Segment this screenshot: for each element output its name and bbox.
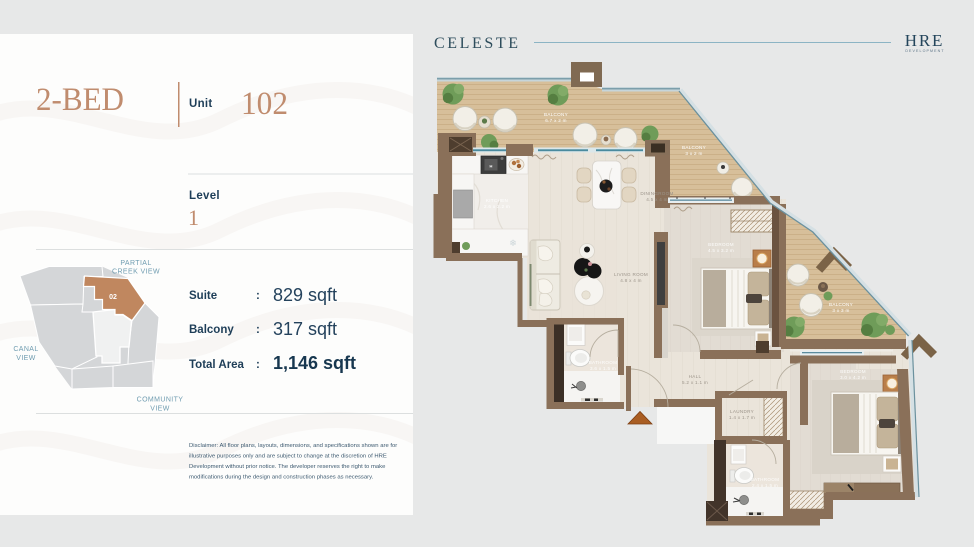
svg-text:PARTIAL: PARTIAL: [120, 260, 151, 267]
svg-text:VIEW: VIEW: [150, 406, 170, 413]
svg-text:3.0 x 4.2 m: 3.0 x 4.2 m: [840, 375, 866, 380]
svg-text:3 x 2 m: 3 x 2 m: [685, 151, 702, 156]
svg-text:1,146 sqft: 1,146 sqft: [273, 353, 356, 373]
svg-text::: :: [256, 324, 260, 336]
svg-text:BALCONY: BALCONY: [682, 145, 706, 150]
svg-text:2.6 x 2.2 m: 2.6 x 2.2 m: [484, 204, 510, 209]
svg-text:2.4 x 1.5 m: 2.4 x 1.5 m: [752, 483, 778, 488]
svg-text:CANAL: CANAL: [13, 346, 38, 353]
svg-text:BEDROOM: BEDROOM: [708, 242, 734, 247]
svg-text:5.2 x 1.1 m: 5.2 x 1.1 m: [682, 380, 708, 385]
svg-text:4.5 x 3.2 m: 4.5 x 3.2 m: [708, 248, 734, 253]
svg-text:BALCONY: BALCONY: [544, 112, 568, 117]
svg-text:Level: Level: [189, 190, 220, 202]
svg-text:829 sqft: 829 sqft: [273, 285, 337, 305]
svg-text:BALCONY: BALCONY: [829, 302, 853, 307]
svg-text:COMMUNITY: COMMUNITY: [137, 397, 184, 404]
svg-text:KITCHEN: KITCHEN: [486, 198, 508, 203]
svg-text:Development without prior noti: Development without prior notice. The de…: [189, 464, 386, 470]
svg-text:modifications during the desig: modifications during the design and cons…: [189, 475, 374, 481]
svg-text:Disclaimer: All floor plans, l: Disclaimer: All floor plans, layouts, di…: [189, 443, 397, 449]
svg-text:HALL: HALL: [689, 374, 702, 379]
svg-text:BEDROOM: BEDROOM: [840, 369, 866, 374]
svg-text:LAUNDRY: LAUNDRY: [730, 409, 754, 414]
svg-text:CELESTE: CELESTE: [434, 35, 521, 52]
svg-text:HRE: HRE: [905, 31, 944, 50]
svg-text:Unit: Unit: [189, 98, 213, 110]
svg-text::: :: [256, 290, 260, 302]
svg-text:DININGROOM: DININGROOM: [640, 191, 673, 196]
svg-text:4.8 x 4 m: 4.8 x 4 m: [620, 278, 642, 283]
svg-text:BATHROOM: BATHROOM: [589, 360, 618, 365]
svg-text:102: 102: [241, 86, 288, 122]
svg-text:3.6 x 1.5 m: 3.6 x 1.5 m: [590, 366, 616, 371]
svg-text:VIEW: VIEW: [16, 355, 36, 362]
svg-text:CREEK VIEW: CREEK VIEW: [112, 269, 160, 276]
svg-text::: :: [256, 359, 260, 371]
svg-text:LIVING ROOM: LIVING ROOM: [614, 272, 648, 277]
svg-text:317 sqft: 317 sqft: [273, 319, 337, 339]
svg-text:BATHROOM: BATHROOM: [751, 477, 780, 482]
svg-text:Total Area: Total Area: [189, 359, 245, 371]
svg-text:2-BED: 2-BED: [36, 82, 124, 118]
svg-text:illustrative purposes only and: illustrative purposes only and are subje…: [189, 454, 387, 460]
svg-text:H: H: [490, 164, 493, 169]
svg-text:Balcony: Balcony: [189, 324, 234, 336]
svg-text:1.4 x 1.7 m: 1.4 x 1.7 m: [729, 415, 755, 420]
svg-text:3 x 3 m: 3 x 3 m: [832, 308, 849, 313]
svg-text:DEVELOPMENT: DEVELOPMENT: [905, 49, 944, 53]
svg-text:4.5 x 4 m: 4.5 x 4 m: [646, 197, 668, 202]
svg-text:02: 02: [109, 294, 117, 301]
svg-text:❄: ❄: [509, 238, 517, 248]
svg-text:1: 1: [188, 205, 199, 230]
svg-text:Suite: Suite: [189, 290, 217, 302]
svg-text:6.7 x 2 m: 6.7 x 2 m: [545, 118, 567, 123]
